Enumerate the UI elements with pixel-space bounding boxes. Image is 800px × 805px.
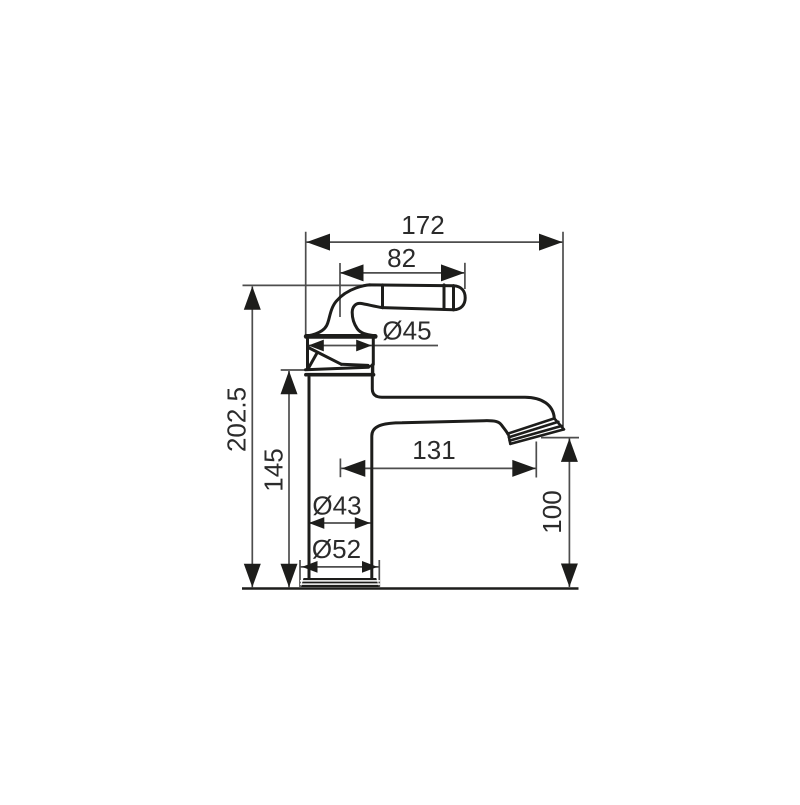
svg-text:Ø52: Ø52: [312, 534, 361, 564]
svg-text:82: 82: [387, 243, 416, 273]
svg-text:Ø45: Ø45: [382, 316, 431, 346]
svg-text:202.5: 202.5: [222, 387, 252, 452]
svg-text:Ø43: Ø43: [312, 491, 361, 521]
svg-text:100: 100: [537, 490, 567, 533]
svg-text:172: 172: [401, 210, 444, 240]
svg-text:131: 131: [412, 435, 455, 465]
svg-text:145: 145: [259, 448, 289, 491]
